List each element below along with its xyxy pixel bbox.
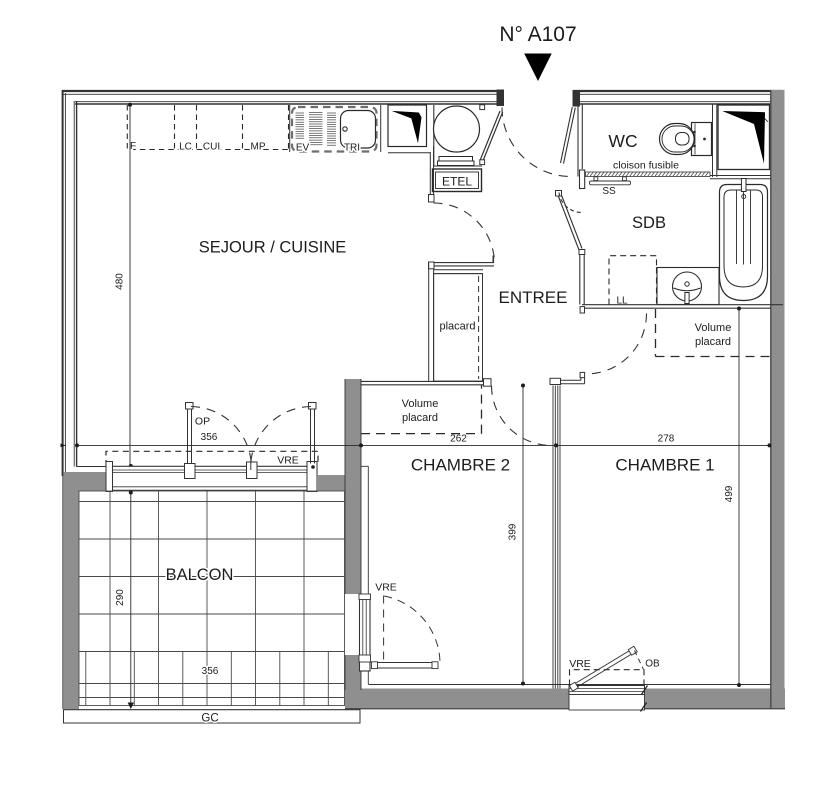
- svg-text:GC: GC: [201, 713, 218, 725]
- svg-text:TRI: TRI: [344, 143, 360, 154]
- svg-text:EV: EV: [296, 143, 310, 154]
- svg-text:N° A107: N° A107: [499, 23, 576, 46]
- svg-text:VRE: VRE: [569, 658, 591, 670]
- svg-text:MP: MP: [251, 142, 266, 153]
- svg-text:placard: placard: [402, 412, 438, 424]
- svg-text:SEJOUR / CUISINE: SEJOUR / CUISINE: [199, 239, 347, 257]
- svg-text:278: 278: [658, 434, 675, 445]
- svg-text:262: 262: [450, 434, 467, 445]
- svg-text:BALCON: BALCON: [166, 566, 234, 584]
- svg-text:F: F: [130, 141, 136, 152]
- svg-text:OB: OB: [645, 659, 660, 670]
- svg-text:WC: WC: [608, 131, 637, 151]
- svg-text:480: 480: [115, 273, 126, 290]
- svg-text:CHAMBRE 1: CHAMBRE 1: [615, 456, 714, 475]
- svg-text:399: 399: [508, 523, 519, 540]
- svg-text:Volume: Volume: [402, 398, 439, 410]
- svg-text:290: 290: [115, 589, 126, 606]
- svg-text:SS: SS: [602, 186, 616, 197]
- svg-text:ETEL: ETEL: [442, 175, 472, 189]
- svg-text:SDB: SDB: [632, 214, 666, 232]
- svg-text:OP: OP: [195, 416, 210, 428]
- svg-text:Volume: Volume: [695, 322, 732, 334]
- svg-text:LC: LC: [179, 142, 192, 153]
- svg-text:cloison fusible: cloison fusible: [613, 160, 679, 172]
- svg-text:VRE: VRE: [277, 455, 299, 467]
- svg-text:VRE: VRE: [375, 582, 397, 594]
- svg-text:placard: placard: [695, 336, 731, 348]
- svg-text:CHAMBRE 2: CHAMBRE 2: [411, 456, 510, 475]
- svg-text:ENTREE: ENTREE: [499, 288, 568, 307]
- svg-text:499: 499: [724, 485, 735, 502]
- svg-text:CUI: CUI: [203, 142, 220, 153]
- svg-text:356: 356: [201, 432, 218, 443]
- svg-text:placard: placard: [439, 321, 475, 333]
- svg-text:356: 356: [202, 666, 219, 677]
